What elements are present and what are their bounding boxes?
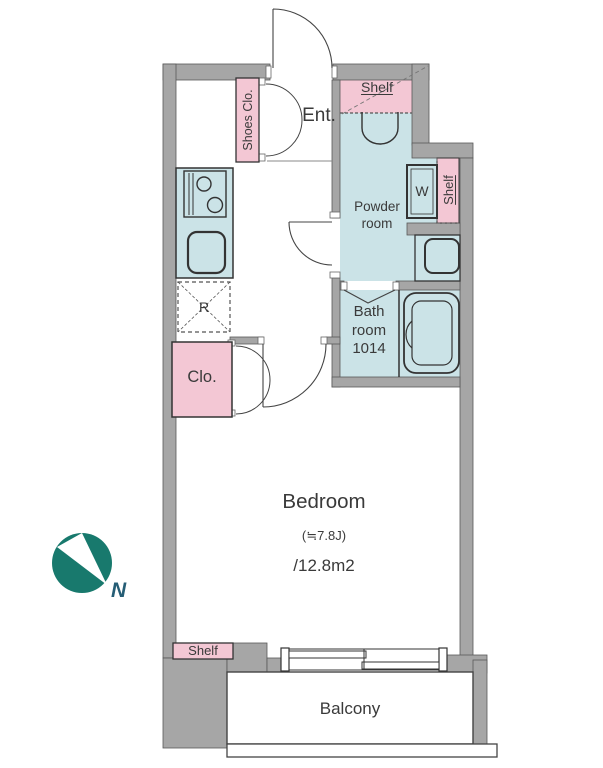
closet-label: Clo. [172,368,232,387]
refrigerator-label: R [189,299,219,315]
entrance-door [273,9,332,68]
bedroom-size-jo: (≒7.8J) [244,528,404,544]
bedroom-size-m2: /12.8m2 [244,556,404,576]
wall-notch [412,143,473,158]
side-shelf-label: Shelf [439,159,459,221]
balcony-window [281,648,447,671]
overhead-shelf-label: Shelf [346,79,408,95]
balcony-label: Balcony [270,699,430,719]
wall-powder-bath-right [396,281,460,290]
north-label: N [111,579,126,603]
floor-plan: Ent. Shoes Clo. Shelf Powder room W Shel… [0,0,603,768]
wall-bedroom-bottom-step [267,658,282,673]
wall-right-main [460,158,473,660]
washer-label: W [406,183,438,199]
powder-room-label: Powder room [337,198,417,232]
wall-balcony-right [473,660,487,744]
wall-bottom-left-chunk [163,658,227,748]
closet-doors [236,346,270,414]
bedroom-door [263,344,326,407]
shoes-closet-label: Shoes Clo. [237,78,259,162]
north-compass [52,533,112,593]
vanity-sink [425,239,459,273]
bottom-shelf-label: Shelf [173,643,233,659]
bedroom-label: Bedroom [244,490,404,514]
wall-right-upper [412,64,429,145]
wall-bath-bottom [332,377,460,387]
balcony-railing [227,744,497,757]
window-pane-right [362,662,439,669]
bathroom-label: Bath room 1014 [338,303,400,359]
entrance-label: Ent. [297,105,341,127]
powder-room-door [289,222,332,265]
window-pane-left [289,651,366,658]
